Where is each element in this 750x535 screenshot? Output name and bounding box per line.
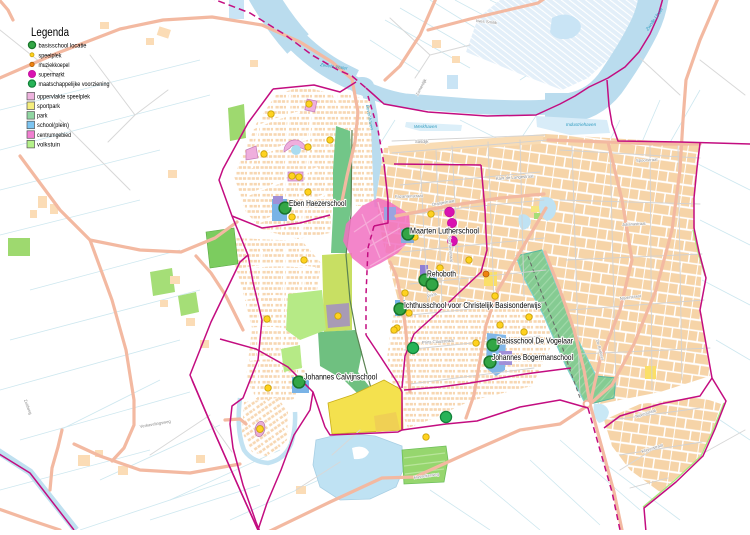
svg-text:volkstuin: volkstuin xyxy=(37,141,60,148)
svg-text:Maarten Lutherschool: Maarten Lutherschool xyxy=(410,227,479,236)
svg-text:Ichthusschool voor Christelijk: Ichthusschool voor Christelijk Basisonde… xyxy=(404,301,541,310)
svg-text:muziekkoepel: muziekkoepel xyxy=(39,62,70,69)
svg-text:Eben Haezerschool: Eben Haezerschool xyxy=(289,199,346,208)
svg-text:Rehoboth: Rehoboth xyxy=(427,270,456,279)
svg-text:sportpark: sportpark xyxy=(37,103,61,110)
svg-text:oppervlakte speelplek: oppervlakte speelplek xyxy=(37,93,91,100)
svg-text:Industriehaven: Industriehaven xyxy=(566,122,597,127)
svg-text:park: park xyxy=(37,113,48,120)
svg-text:centrumgebied: centrumgebied xyxy=(37,132,71,139)
svg-text:school(plein): school(plein) xyxy=(37,122,69,129)
svg-text:maatschappelijke voorziening: maatschappelijke voorziening xyxy=(39,81,110,88)
svg-text:Werkhaven: Werkhaven xyxy=(414,124,438,129)
svg-text:supermarkt: supermarkt xyxy=(39,72,65,79)
svg-text:Fazantenstraat: Fazantenstraat xyxy=(395,193,424,199)
svg-text:Sasdijk: Sasdijk xyxy=(415,139,429,144)
svg-text:Basisschool De Vogelaar: Basisschool De Vogelaar xyxy=(497,337,573,346)
svg-text:Johannes Calvijnschool: Johannes Calvijnschool xyxy=(304,373,377,382)
svg-text:speelplek: speelplek xyxy=(39,52,63,59)
svg-text:Legenda: Legenda xyxy=(31,27,70,39)
svg-text:basisschool locatie: basisschool locatie xyxy=(39,43,87,50)
svg-text:Johannes Bogermanschool: Johannes Bogermanschool xyxy=(492,353,573,362)
